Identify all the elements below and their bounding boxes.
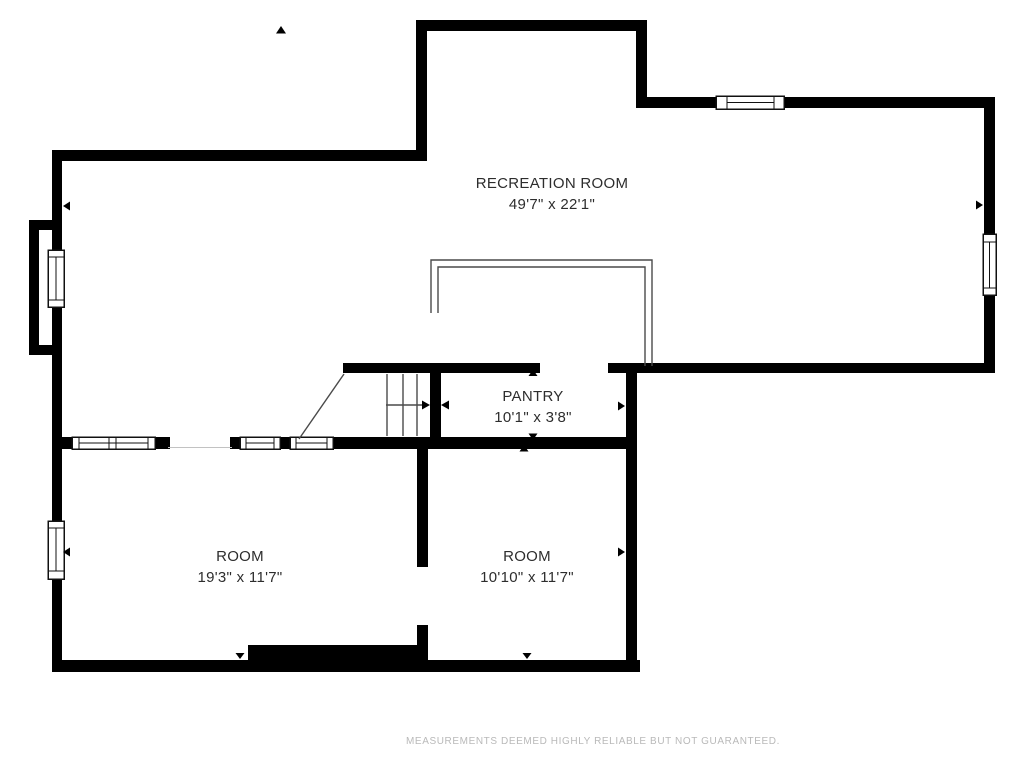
- room-name: RECREATION ROOM: [402, 173, 702, 194]
- stair-railing: [431, 260, 652, 366]
- disclaimer-text: MEASUREMENTS DEEMED HIGHLY RELIABLE BUT …: [293, 736, 893, 747]
- wall-segment: [155, 437, 170, 449]
- room-label-room-left: ROOM 19'3" x 11'7": [115, 546, 365, 588]
- wall-segment: [416, 20, 427, 161]
- wall-segment: [280, 437, 290, 449]
- window-symbol-room-a: [72, 437, 155, 449]
- stair-break-line: [299, 374, 344, 439]
- wall-segment: [52, 150, 62, 220]
- wall-segment: [29, 220, 39, 355]
- wall-segment: [343, 363, 540, 373]
- wall-segment: [52, 660, 640, 672]
- room-dimensions: 19'3" x 11'7": [115, 567, 365, 588]
- room-dimensions: 10'10" x 11'7": [402, 567, 652, 588]
- room-label-recreation-room: RECREATION ROOM 49'7" x 22'1": [402, 173, 702, 215]
- window-symbol-left-lower: [48, 521, 64, 579]
- windows: [48, 96, 996, 579]
- room-name: ROOM: [402, 546, 652, 567]
- wall-segment: [52, 150, 427, 161]
- measure-arrow-icon: [976, 201, 983, 210]
- floor-plan-canvas: RECREATION ROOM 49'7" x 22'1" PANTRY 10'…: [0, 0, 1024, 768]
- wall-segment: [52, 355, 62, 672]
- wall-segment: [636, 97, 995, 108]
- wall-segment: [248, 645, 420, 661]
- railing-inner-line: [438, 267, 645, 366]
- room-label-pantry: PANTRY 10'1" x 3'8": [433, 386, 633, 428]
- wall-segment: [417, 625, 428, 661]
- measure-arrow-icon: [63, 202, 70, 211]
- railing-outer-line: [431, 260, 652, 366]
- wall-segment: [52, 230, 62, 252]
- window-symbol-bay: [48, 250, 64, 307]
- stair-direction-arrow-icon: [422, 401, 430, 410]
- wall-segment: [608, 363, 995, 373]
- measure-arrow-icon: [236, 653, 245, 659]
- room-label-room-right: ROOM 10'10" x 11'7": [402, 546, 652, 588]
- measure-arrow-icon: [276, 26, 286, 34]
- room-name: PANTRY: [433, 386, 633, 407]
- window-symbol-room-b: [240, 437, 280, 449]
- window-symbol-right: [983, 234, 996, 295]
- window-symbol-room-c: [290, 437, 333, 449]
- wall-segment: [52, 303, 62, 355]
- wall-segment: [62, 437, 72, 449]
- room-dimensions: 49'7" x 22'1": [402, 194, 702, 215]
- staircase: [299, 374, 449, 439]
- window-symbol-top: [716, 96, 784, 109]
- floor-plan-drawing: [0, 0, 1024, 768]
- wall-segment: [636, 20, 647, 108]
- measure-arrow-icon: [523, 653, 532, 659]
- room-dimensions: 10'1" x 3'8": [433, 407, 633, 428]
- wall-segment: [333, 437, 637, 449]
- room-name: ROOM: [115, 546, 365, 567]
- wall-segment: [416, 20, 647, 31]
